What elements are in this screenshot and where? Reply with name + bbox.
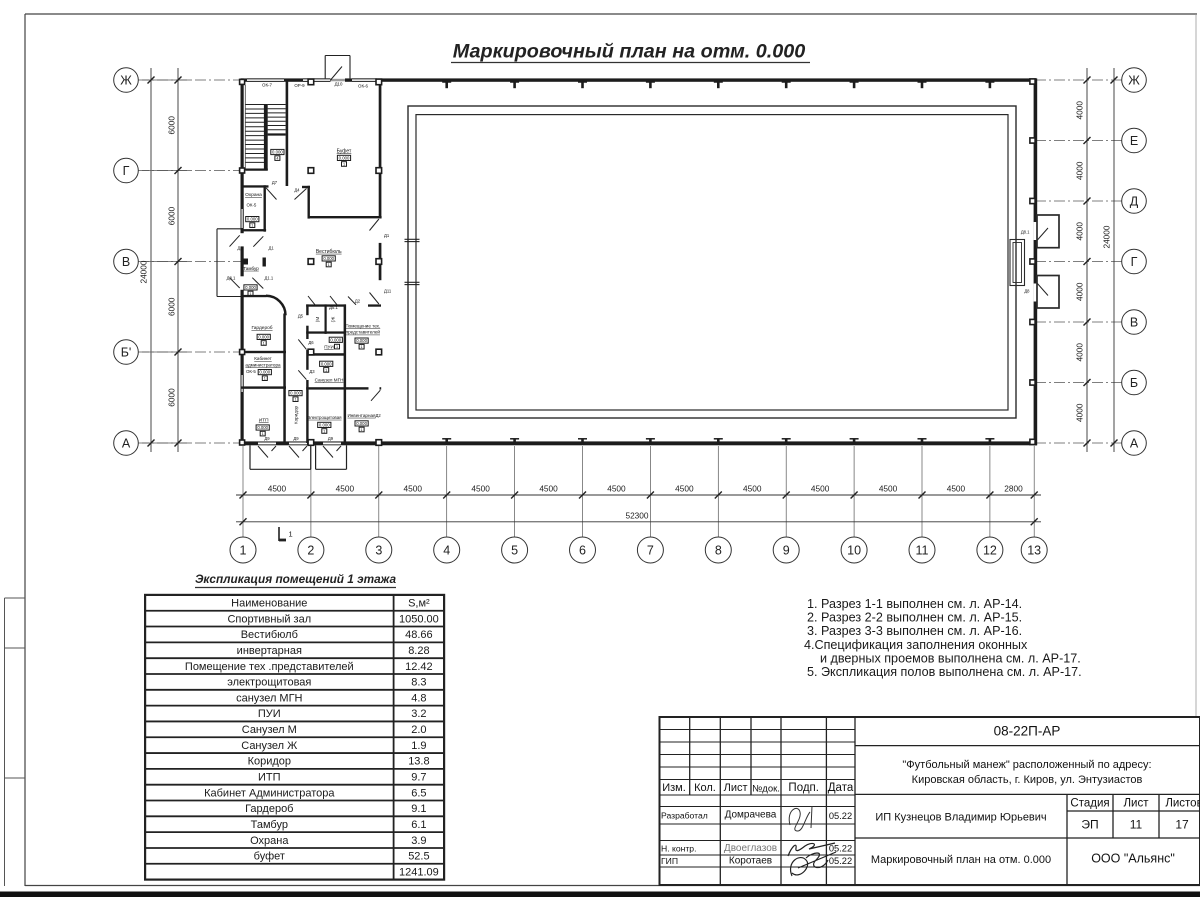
svg-text:Д9: Д9	[328, 436, 334, 441]
svg-text:Санузел М: Санузел М	[242, 724, 297, 736]
svg-text:ПУИ: ПУИ	[324, 344, 334, 349]
svg-text:буфет: буфет	[254, 851, 285, 863]
svg-text:ОК-5: ОК-5	[247, 203, 257, 208]
svg-text:1: 1	[328, 263, 330, 267]
svg-text:Д5: Д5	[298, 314, 304, 319]
svg-text:Б: Б	[1130, 376, 1138, 390]
svg-text:Вестибюлб: Вестибюлб	[241, 629, 298, 641]
svg-text:Д8.1: Д8.1	[1021, 229, 1030, 234]
svg-text:Двоеглазов: Двоеглазов	[724, 843, 777, 854]
svg-text:0.000: 0.000	[339, 156, 350, 161]
svg-text:1: 1	[240, 544, 247, 558]
svg-text:9: 9	[783, 544, 790, 558]
svg-text:0.000: 0.000	[245, 285, 256, 290]
svg-text:1: 1	[264, 377, 266, 381]
svg-text:2: 2	[307, 544, 314, 558]
svg-text:13: 13	[1027, 544, 1041, 558]
svg-text:9.1: 9.1	[411, 803, 426, 815]
svg-text:6000: 6000	[167, 116, 177, 135]
svg-text:1050.00: 1050.00	[399, 613, 439, 625]
svg-text:Д1.1: Д1.1	[265, 276, 274, 281]
svg-text:"Футбольный манеж" расположенн: "Футбольный манеж" расположенный по адре…	[902, 759, 1151, 771]
svg-text:4500: 4500	[336, 484, 355, 494]
svg-text:4500: 4500	[268, 484, 287, 494]
svg-text:Д1: Д1	[269, 245, 275, 250]
svg-text:0.000: 0.000	[257, 425, 268, 430]
svg-text:08-22П-АР: 08-22П-АР	[994, 724, 1061, 739]
svg-text:Санузел МГН: Санузел МГН	[315, 377, 344, 382]
svg-text:4500: 4500	[947, 484, 966, 494]
svg-text:1: 1	[343, 163, 345, 167]
svg-text:инвертарная: инвертарная	[237, 645, 302, 657]
svg-text:52.5: 52.5	[408, 851, 429, 863]
svg-text:0.000: 0.000	[272, 150, 283, 155]
svg-text:Д2: Д2	[376, 413, 382, 418]
svg-text:Наименование: Наименование	[231, 598, 307, 610]
svg-text:Буфет: Буфет	[337, 148, 352, 154]
svg-text:Экспликация помещений 1 этажа: Экспликация помещений 1 этажа	[195, 572, 397, 586]
svg-text:4000: 4000	[1075, 282, 1085, 301]
svg-text:6: 6	[579, 544, 586, 558]
svg-text:Лист: Лист	[1124, 798, 1150, 810]
svg-text:05.22: 05.22	[829, 856, 852, 866]
svg-text:ОК-6: ОК-6	[358, 83, 368, 88]
svg-text:0.000: 0.000	[259, 370, 270, 375]
svg-text:Маркировочный план на отм. 0.0: Маркировочный план на отм. 0.000	[871, 854, 1051, 866]
svg-text:Домрачева: Домрачева	[725, 810, 777, 821]
svg-text:6.5: 6.5	[411, 787, 426, 799]
svg-text:24000: 24000	[1102, 225, 1112, 248]
svg-text:Листов: Листов	[1165, 798, 1200, 810]
svg-text:4500: 4500	[743, 484, 762, 494]
svg-text:4500: 4500	[471, 484, 490, 494]
svg-text:4000: 4000	[1075, 101, 1085, 120]
svg-text:В: В	[122, 255, 130, 269]
svg-text:24000: 24000	[139, 260, 149, 283]
svg-text:3.9: 3.9	[411, 835, 426, 847]
svg-text:Гардероб: Гардероб	[251, 325, 272, 331]
svg-text:и дверных проемов выполнена см: и дверных проемов выполнена см. л. АР-17…	[820, 651, 1081, 665]
svg-text:11: 11	[1130, 818, 1143, 832]
svg-text:8.28: 8.28	[408, 645, 429, 657]
svg-text:4000: 4000	[1075, 403, 1085, 422]
svg-text:Д: Д	[1130, 195, 1139, 209]
svg-text:Д5.1: Д5.1	[329, 305, 338, 310]
svg-text:Д9: Д9	[293, 436, 299, 441]
svg-text:Д6: Д6	[308, 340, 314, 345]
svg-text:(М: (М	[315, 317, 320, 323]
svg-text:52300: 52300	[625, 511, 648, 521]
svg-text:ИТП: ИТП	[258, 771, 281, 783]
svg-text:ОР-9: ОР-9	[294, 83, 305, 88]
svg-text:Б': Б'	[121, 346, 132, 360]
svg-text:1: 1	[361, 428, 363, 432]
svg-text:Инвентарная: Инвентарная	[347, 413, 376, 418]
svg-text:05.22: 05.22	[829, 811, 852, 821]
svg-text:Д3: Д3	[309, 369, 315, 374]
svg-text:11: 11	[916, 544, 929, 558]
svg-text:Д2: Д2	[355, 299, 361, 304]
svg-text:3.2: 3.2	[411, 708, 426, 720]
svg-text:05.22: 05.22	[829, 844, 852, 854]
svg-text:Д9: Д9	[264, 436, 270, 441]
svg-text:0.000: 0.000	[356, 421, 367, 426]
svg-text:4.8: 4.8	[411, 692, 426, 704]
svg-text:Разработал: Разработал	[661, 811, 708, 821]
svg-text:48.66: 48.66	[405, 629, 433, 641]
svg-text:Помещение тех .представителей: Помещение тех .представителей	[185, 661, 354, 673]
svg-text:4500: 4500	[675, 484, 694, 494]
svg-text:Г: Г	[123, 164, 130, 178]
svg-text:0.000: 0.000	[356, 338, 367, 343]
svg-text:ОК-5: ОК-5	[246, 369, 256, 374]
svg-text:Коридор: Коридор	[248, 756, 291, 768]
svg-text:6.1: 6.1	[411, 819, 426, 831]
svg-text:10: 10	[847, 544, 861, 558]
svg-text:1. Разрез 1-1 выполнен см. л.: 1. Разрез 1-1 выполнен см. л. АР-14.	[807, 597, 1022, 611]
svg-text:4500: 4500	[811, 484, 830, 494]
svg-text:1.9: 1.9	[411, 740, 426, 752]
svg-text:ИП Кузнецов Владимир Юрьевич: ИП Кузнецов Владимир Юрьевич	[875, 812, 1046, 824]
svg-text:3: 3	[375, 544, 382, 558]
svg-text:Охрана: Охрана	[245, 192, 262, 198]
svg-text:санузел МГН: санузел МГН	[236, 692, 302, 704]
svg-text:Д1: Д1	[384, 233, 390, 238]
svg-text:Д11: Д11	[384, 288, 392, 293]
svg-text:2800: 2800	[1004, 484, 1023, 494]
svg-text:А: А	[1130, 437, 1139, 451]
svg-text:1: 1	[336, 345, 338, 349]
svg-text:1: 1	[361, 345, 363, 349]
svg-text:0.000: 0.000	[330, 337, 341, 342]
svg-text:1241.09: 1241.09	[399, 866, 439, 878]
svg-text:Изм.: Изм.	[662, 782, 686, 794]
svg-text:Стадия: Стадия	[1070, 798, 1109, 810]
svg-text:Д4: Д4	[294, 187, 300, 192]
svg-text:5: 5	[511, 544, 518, 558]
svg-text:1: 1	[262, 432, 264, 436]
svg-text:ИТП: ИТП	[259, 418, 269, 424]
svg-text:Кол.: Кол.	[694, 782, 716, 794]
svg-text:7: 7	[647, 544, 654, 558]
svg-text:12.42: 12.42	[405, 661, 433, 673]
svg-text:3. Разрез 3-3 выполнен см. л.: 3. Разрез 3-3 выполнен см. л. АР-16.	[807, 624, 1022, 638]
svg-text:ЭП: ЭП	[1081, 818, 1098, 832]
svg-text:(Ж: (Ж	[331, 316, 336, 323]
svg-text:0.000: 0.000	[321, 361, 332, 366]
svg-text:Спортивный зал: Спортивный зал	[227, 613, 311, 625]
svg-text:Кировская область, г. Киров, у: Кировская область, г. Киров, ул. Энтузиа…	[912, 774, 1143, 786]
svg-text:Ж: Ж	[1128, 74, 1140, 88]
svg-text:Д8: Д8	[237, 245, 243, 250]
svg-text:8: 8	[715, 544, 722, 558]
svg-text:Помещение тех.: Помещение тех.	[345, 324, 380, 329]
svg-text:Подп.: Подп.	[788, 782, 819, 794]
svg-text:4000: 4000	[1075, 161, 1085, 180]
svg-text:4000: 4000	[1075, 222, 1085, 241]
svg-text:0.000: 0.000	[323, 256, 334, 261]
svg-text:17: 17	[1175, 818, 1189, 832]
svg-text:ООО "Альянс": ООО "Альянс"	[1091, 852, 1175, 866]
svg-text:Электрощитовая: Электрощитовая	[307, 415, 342, 420]
svg-text:Коридор: Коридор	[293, 405, 298, 424]
svg-text:Тамбур: Тамбур	[243, 266, 259, 271]
svg-text:4500: 4500	[607, 484, 626, 494]
svg-text:Д8.1: Д8.1	[227, 276, 236, 281]
svg-text:Д7: Д7	[272, 180, 278, 185]
svg-text:Д10: Д10	[335, 81, 343, 86]
svg-text:Маркировочный план на отм. 0.0: Маркировочный план на отм. 0.000	[453, 41, 805, 63]
svg-text:Кабинет Администратора: Кабинет Администратора	[204, 787, 335, 799]
svg-text:2. Разрез 2-2 выполнен см. л.: 2. Разрез 2-2 выполнен см. л. АР-15.	[807, 611, 1022, 625]
svg-text:Е: Е	[1130, 134, 1138, 148]
svg-text:Санузел Ж: Санузел Ж	[241, 740, 297, 752]
svg-text:4: 4	[443, 544, 450, 558]
svg-text:Коротаев: Коротаев	[729, 856, 772, 867]
svg-text:Г: Г	[1131, 255, 1138, 269]
svg-text:Ж: Ж	[120, 74, 132, 88]
svg-text:S,м²: S,м²	[408, 598, 430, 610]
svg-text:Лист: Лист	[724, 782, 748, 794]
svg-text:6000: 6000	[167, 206, 177, 225]
svg-text:1: 1	[325, 368, 327, 372]
svg-text:0.000: 0.000	[247, 217, 258, 222]
svg-text:Кабинет: Кабинет	[254, 356, 272, 361]
svg-text:4500: 4500	[404, 484, 423, 494]
svg-text:9.7: 9.7	[411, 771, 426, 783]
svg-text:0.000: 0.000	[258, 335, 269, 340]
svg-text:Н. контр.: Н. контр.	[661, 844, 696, 854]
svg-text:1: 1	[251, 224, 253, 228]
svg-text:6000: 6000	[167, 388, 177, 407]
svg-text:1: 1	[323, 430, 325, 434]
svg-text:13.8: 13.8	[408, 756, 429, 768]
svg-text:6000: 6000	[167, 297, 177, 316]
svg-text:Тамбур: Тамбур	[251, 819, 288, 831]
svg-text:А: А	[122, 437, 131, 451]
svg-text:Охрана: Охрана	[250, 835, 289, 847]
svg-text:1: 1	[249, 292, 251, 296]
svg-text:В: В	[1130, 316, 1138, 330]
svg-text:4000: 4000	[1075, 343, 1085, 362]
svg-text:№док.: №док.	[752, 784, 780, 795]
svg-text:4500: 4500	[879, 484, 898, 494]
svg-text:электрощитовая: электрощитовая	[227, 677, 311, 689]
svg-text:представителей: представителей	[346, 329, 381, 335]
svg-text:8.3: 8.3	[411, 677, 426, 689]
svg-text:ОК-7: ОК-7	[262, 83, 272, 88]
svg-text:0.000: 0.000	[290, 391, 301, 396]
svg-text:ПУИ: ПУИ	[258, 708, 281, 720]
svg-text:5. Экспликация полов выполнена: 5. Экспликация полов выполнена см. л. АР…	[807, 665, 1082, 679]
svg-text:4: 4	[276, 157, 278, 161]
svg-text:Д8: Д8	[1024, 288, 1030, 293]
svg-text:0.000: 0.000	[319, 423, 330, 428]
svg-text:ГИП: ГИП	[661, 856, 678, 866]
svg-text:1: 1	[263, 342, 265, 346]
svg-text:12: 12	[983, 544, 997, 558]
svg-text:1: 1	[294, 398, 296, 402]
svg-text:Гардероб: Гардероб	[245, 803, 293, 815]
svg-text:4500: 4500	[539, 484, 558, 494]
svg-text:Вестибюль: Вестибюль	[316, 249, 342, 255]
svg-text:1: 1	[289, 530, 293, 539]
svg-text:4.Спецификация заполнения окон: 4.Спецификация заполнения оконных	[804, 638, 1028, 652]
svg-text:2.0: 2.0	[411, 724, 426, 736]
svg-text:Дата: Дата	[828, 782, 854, 794]
svg-text:администратора: администратора	[245, 362, 281, 367]
